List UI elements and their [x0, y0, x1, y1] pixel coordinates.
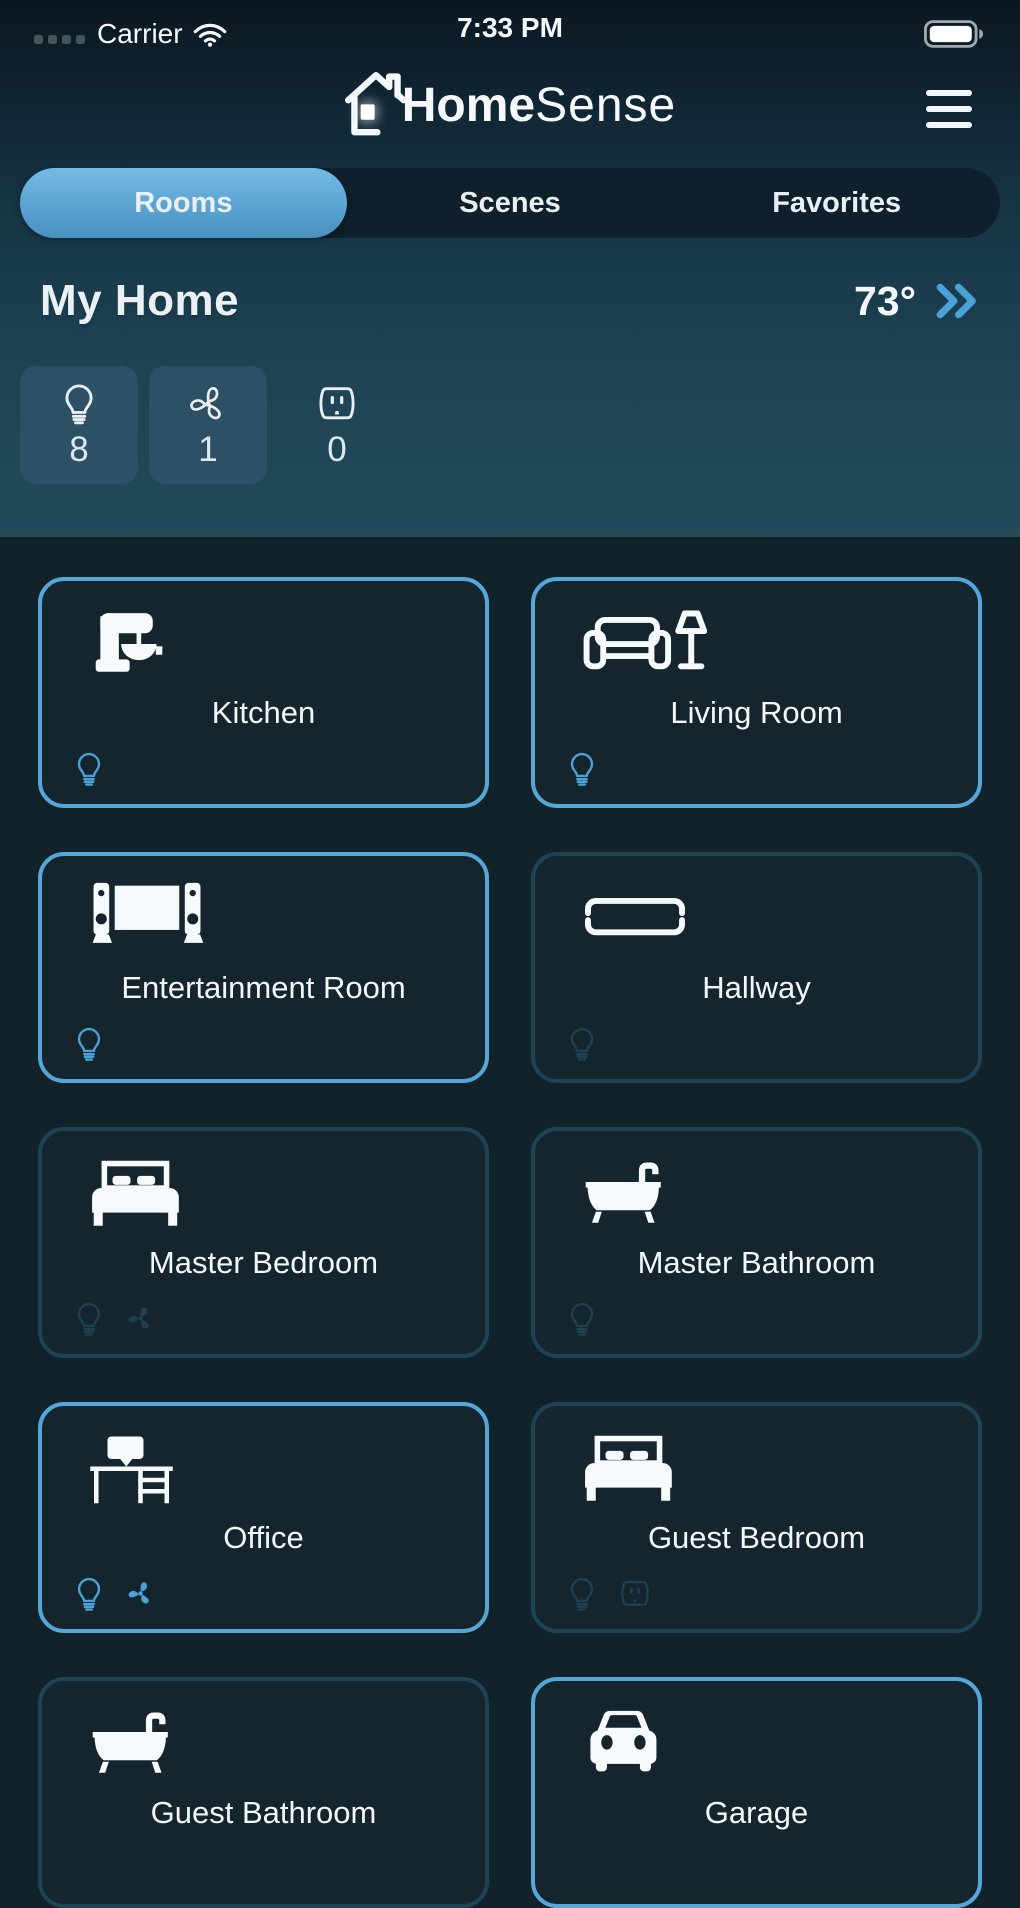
lightbulb-icon [563, 1025, 601, 1063]
lightbulb-icon [70, 1025, 108, 1063]
room-card-living-room[interactable]: Living Room [531, 577, 982, 808]
bathtub-icon [88, 1707, 173, 1779]
fan-icon [185, 381, 231, 427]
room-device-status [70, 1575, 157, 1613]
badge-bulb[interactable]: 8 [20, 366, 138, 484]
room-card-master-bedroom[interactable]: Master Bedroom [38, 1127, 489, 1358]
outlet-icon [314, 381, 360, 427]
brand-name-bold: Home [402, 82, 535, 130]
temperature-value: 73° [854, 278, 916, 325]
lightbulb-icon [70, 1575, 108, 1613]
device-count-badges: 810 [0, 366, 1020, 484]
room-card-hallway[interactable]: Hallway [531, 852, 982, 1083]
car-icon [581, 1707, 666, 1773]
room-device-status [70, 1300, 157, 1338]
battery-icon [922, 20, 986, 48]
room-label: Living Room [535, 695, 978, 731]
menu-icon [926, 90, 972, 128]
stand-mixer-icon [88, 607, 168, 681]
tab-bar: RoomsScenesFavorites [20, 168, 1000, 238]
room-label: Kitchen [42, 695, 485, 731]
bed-icon [581, 1432, 676, 1504]
homesense-app: Carrier 7:33 PM Home Sense RoomsScenesFa… [0, 0, 1020, 1908]
room-label: Office [42, 1520, 485, 1556]
room-label: Entertainment Room [42, 970, 485, 1006]
fan-icon [124, 1577, 157, 1613]
badge-fan[interactable]: 1 [149, 366, 267, 484]
menu-button[interactable] [920, 84, 978, 134]
badge-count: 1 [198, 430, 217, 470]
lightbulb-icon [56, 381, 102, 427]
bed-icon [88, 1157, 183, 1229]
wifi-icon [193, 20, 227, 48]
lightbulb-icon [563, 1575, 601, 1613]
rooms-grid: KitchenLiving RoomEntertainment RoomHall… [0, 537, 1020, 1908]
status-bar: Carrier 7:33 PM [0, 0, 1020, 58]
carrier-group: Carrier [34, 18, 227, 50]
room-label: Hallway [535, 970, 978, 1006]
room-device-status [563, 1025, 601, 1063]
home-title: My Home [40, 276, 239, 326]
lightbulb-icon [563, 750, 601, 788]
tv-speakers-icon [88, 882, 206, 945]
room-device-status [70, 750, 108, 788]
home-header: My Home 73° [0, 276, 1020, 326]
fan-icon [124, 1302, 157, 1338]
tab-rooms[interactable]: Rooms [20, 168, 347, 238]
room-label: Guest Bedroom [535, 1520, 978, 1556]
lightbulb-icon [70, 1300, 108, 1338]
lightbulb-icon [70, 750, 108, 788]
brand-name-light: Sense [535, 82, 676, 130]
badge-count: 0 [327, 430, 346, 470]
badge-outlet[interactable]: 0 [278, 366, 396, 484]
room-device-status [563, 1575, 653, 1613]
room-card-kitchen[interactable]: Kitchen [38, 577, 489, 808]
room-card-entertainment-room[interactable]: Entertainment Room [38, 852, 489, 1083]
hero-section: Carrier 7:33 PM Home Sense RoomsScenesFa… [0, 0, 1020, 537]
chevrons-right-icon [934, 281, 980, 321]
cell-signal-icon [34, 35, 85, 44]
room-card-master-bathroom[interactable]: Master Bathroom [531, 1127, 982, 1358]
badge-count: 8 [69, 430, 88, 470]
thermostat-shortcut[interactable]: 73° [854, 278, 980, 325]
tab-scenes[interactable]: Scenes [347, 168, 674, 238]
outlet-icon [617, 1576, 653, 1613]
app-logo: Home Sense [344, 74, 676, 138]
desk-icon [88, 1432, 175, 1504]
bathtub-icon [581, 1157, 666, 1229]
hallway-rug-icon [581, 882, 689, 939]
room-label: Master Bathroom [535, 1245, 978, 1281]
tab-favorites[interactable]: Favorites [673, 168, 1000, 238]
room-card-garage[interactable]: Garage [531, 1677, 982, 1908]
room-card-guest-bathroom[interactable]: Guest Bathroom [38, 1677, 489, 1908]
room-device-status [563, 1300, 601, 1338]
room-label: Master Bedroom [42, 1245, 485, 1281]
room-card-guest-bedroom[interactable]: Guest Bedroom [531, 1402, 982, 1633]
app-header: Home Sense [0, 58, 1020, 154]
room-label: Guest Bathroom [42, 1795, 485, 1831]
room-device-status [70, 1025, 108, 1063]
carrier-label: Carrier [97, 18, 183, 50]
house-logo-icon [344, 68, 408, 138]
room-card-office[interactable]: Office [38, 1402, 489, 1633]
sofa-lamp-icon [581, 607, 707, 689]
lightbulb-icon [563, 1300, 601, 1338]
room-device-status [563, 750, 601, 788]
room-label: Garage [535, 1795, 978, 1831]
